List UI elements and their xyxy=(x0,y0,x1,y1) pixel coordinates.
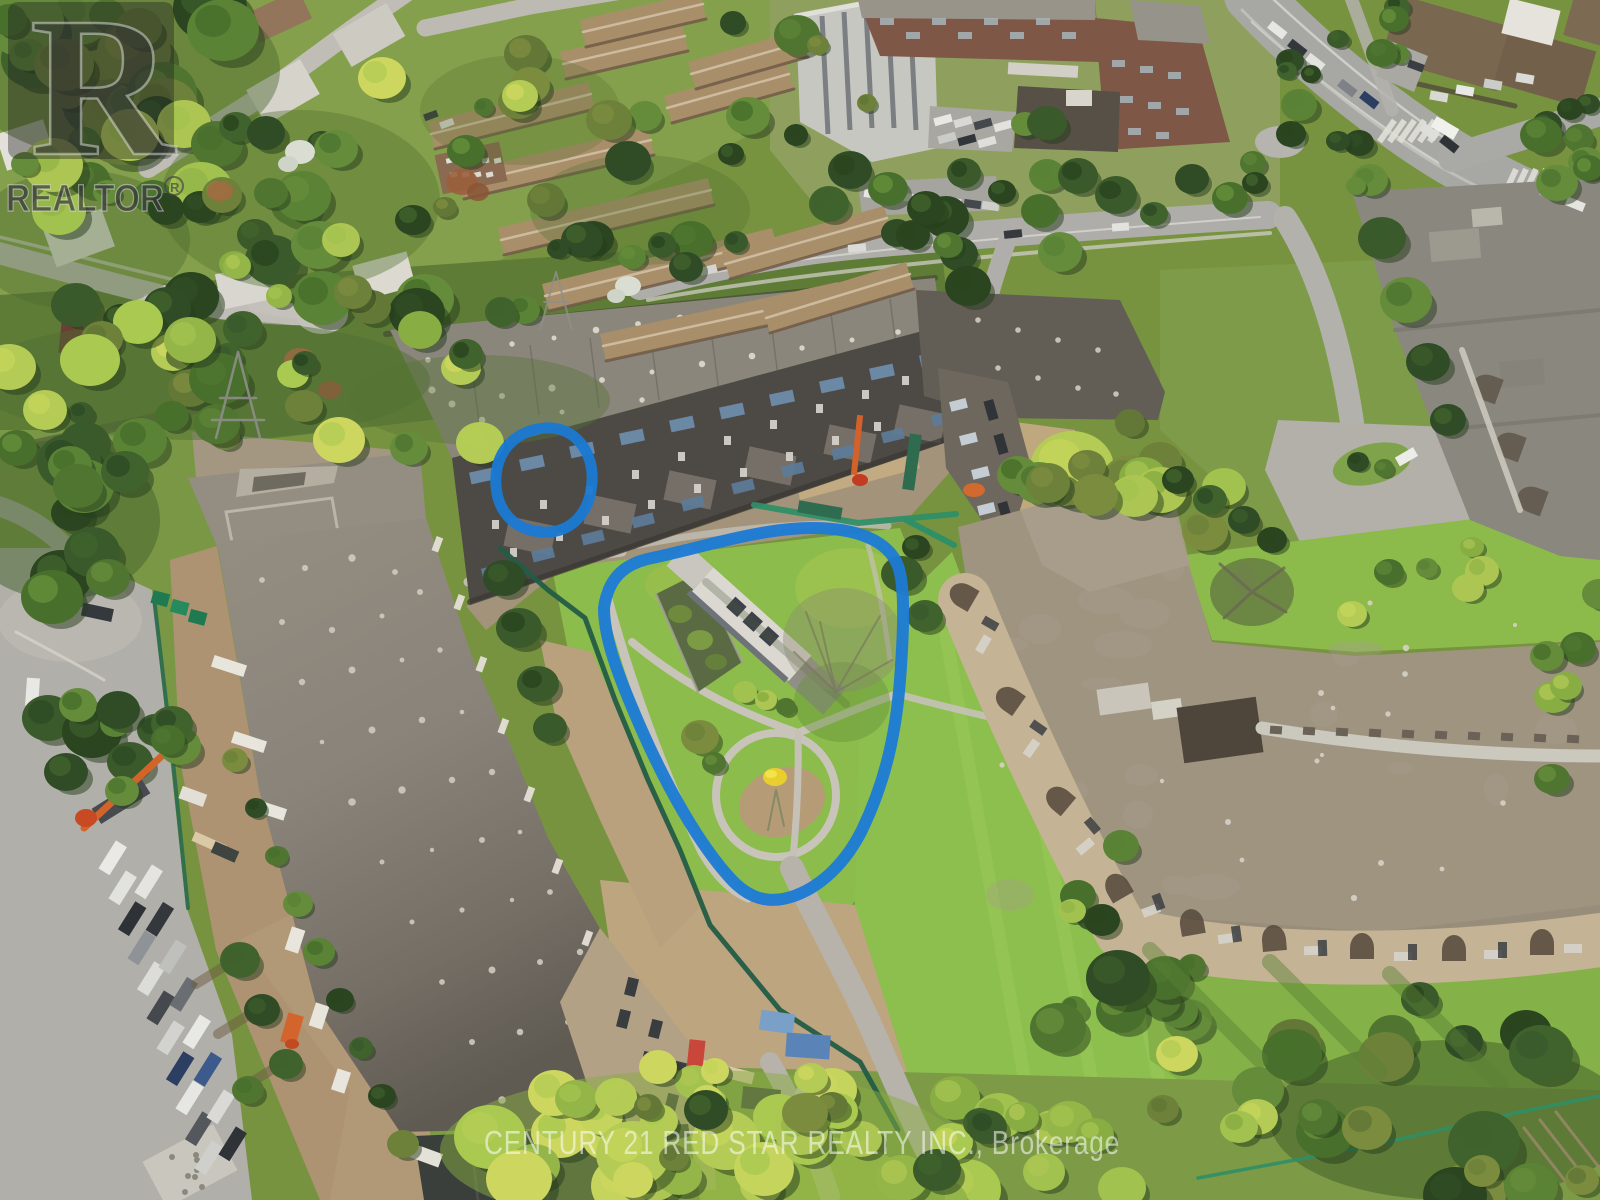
svg-text:R: R xyxy=(170,180,180,195)
svg-text:R: R xyxy=(30,0,177,198)
svg-text:REALTOR: REALTOR xyxy=(6,178,164,220)
svg-text:CENTURY 21 RED STAR REALTY INC: CENTURY 21 RED STAR REALTY INC., Brokera… xyxy=(484,1124,1120,1161)
